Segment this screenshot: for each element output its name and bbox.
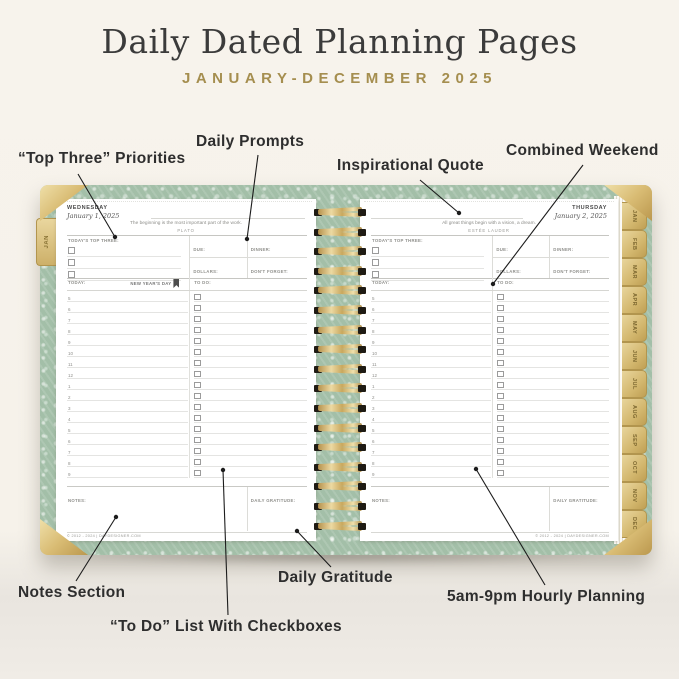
dont-forget-label: DON'T FORGET: xyxy=(553,269,590,274)
priority-checkbox xyxy=(372,259,379,266)
annotation-daily-gratitude: Daily Gratitude xyxy=(278,569,393,587)
todo-label: TO DO: xyxy=(194,280,211,285)
quote-author: PLATO xyxy=(108,228,264,233)
annotation-top-three-priorities: “Top Three” Priorities xyxy=(18,150,185,168)
annotation-combined-weekend: Combined Weekend xyxy=(506,142,659,160)
hour-row: 3 xyxy=(67,401,307,412)
hour-row: 11 xyxy=(371,357,609,368)
hour-row: 4 xyxy=(371,412,609,423)
priorities-and-prompts-band: TODAY'S TOP THREE: DUE: DOLLARS: DINNER:… xyxy=(371,235,609,279)
today-label: TODAY: xyxy=(68,280,85,285)
todo-checkbox xyxy=(194,448,201,455)
todo-checkbox xyxy=(497,415,504,422)
gratitude-section: DAILY GRATITUDE: xyxy=(247,487,307,531)
hour-row: 3 xyxy=(371,401,609,412)
top-three-rows xyxy=(371,245,492,281)
hour-row: 9 xyxy=(371,467,609,478)
notes-label: NOTES: xyxy=(372,498,390,503)
due-label: DUE: xyxy=(193,247,205,252)
month-tab-feb: FEB xyxy=(622,230,647,258)
hour-row: 7 xyxy=(67,445,307,456)
dinner-dontforget-column: DINNER: DON'T FORGET: xyxy=(549,236,609,278)
due-dollars-column: DUE: DOLLARS: xyxy=(189,236,246,278)
today-todo-header: TODAY: TO DO: xyxy=(371,277,609,291)
hour-row: 7 xyxy=(67,313,307,324)
todo-checkbox xyxy=(194,305,201,312)
notes-section: NOTES: xyxy=(371,487,549,531)
hour-row: 9 xyxy=(67,467,307,478)
gratitude-section: DAILY GRATITUDE: xyxy=(549,487,609,531)
hour-row: 5 xyxy=(371,291,609,302)
hour-row: 7 xyxy=(371,445,609,456)
schedule-grid: TODAY: NEW YEAR'S DAY TO DO: 56789101112… xyxy=(67,277,307,478)
bookmark-flag-icon xyxy=(173,279,179,288)
todo-checkbox xyxy=(497,448,504,455)
month-tab-jul: JUL xyxy=(622,370,647,398)
product-infographic: Daily Dated Planning Pages JANUARY-DECEM… xyxy=(0,0,679,679)
hour-row: 4 xyxy=(67,412,307,423)
quote-author: ESTÉE LAUDER xyxy=(412,228,567,233)
dinner-label: DINNER: xyxy=(251,247,271,252)
hour-row: 8 xyxy=(371,456,609,467)
due-label: DUE: xyxy=(496,247,508,252)
hour-row: 6 xyxy=(371,434,609,445)
dinner-dontforget-column: DINNER: DON'T FORGET: xyxy=(247,236,307,278)
todo-checkbox xyxy=(194,360,201,367)
todo-line xyxy=(194,477,307,478)
month-tab-may: MAY xyxy=(622,314,647,342)
todo-checkbox xyxy=(194,371,201,378)
todo-checkbox xyxy=(194,415,201,422)
inspirational-quote: All great things begin with a vision, a … xyxy=(412,221,567,233)
page-subtitle: JANUARY-DECEMBER 2025 xyxy=(0,70,679,87)
hour-row: 1 xyxy=(67,379,307,390)
todo-checkbox xyxy=(497,316,504,323)
todo-checkbox xyxy=(497,338,504,345)
top-three-label: TODAY'S TOP THREE: xyxy=(68,238,189,243)
dollars-label: DOLLARS: xyxy=(496,269,521,274)
todo-checkbox xyxy=(194,294,201,301)
footer-rule xyxy=(371,532,609,533)
gratitude-label: DAILY GRATITUDE: xyxy=(553,498,598,503)
today-label: TODAY: xyxy=(372,280,389,285)
todo-checkbox xyxy=(194,404,201,411)
hour-row: 1 xyxy=(371,379,609,390)
priority-checkbox xyxy=(68,259,75,266)
quote-text: All great things begin with a vision, a … xyxy=(412,221,567,227)
todo-checkbox xyxy=(194,459,201,466)
hour-line xyxy=(371,477,491,478)
notes-gratitude-band: NOTES: DAILY GRATITUDE: xyxy=(67,486,307,531)
todo-checkbox xyxy=(497,470,504,477)
priorities-and-prompts-band: TODAY'S TOP THREE: DUE: DOLLARS: DINNER:… xyxy=(67,235,307,279)
hourly-schedule: 56789101112123456789 xyxy=(371,291,609,478)
hour-row: 8 xyxy=(67,324,307,335)
hour-row: 10 xyxy=(67,346,307,357)
quote-text: The beginning is the most important part… xyxy=(108,221,264,227)
hour-row: 12 xyxy=(371,368,609,379)
month-tab-aug: AUG xyxy=(622,398,647,426)
top-three-rows xyxy=(67,245,189,281)
page-footer: © 2012 - 2024 | DAYDESIGNER.COM xyxy=(67,534,307,538)
footer-rule xyxy=(67,532,307,533)
todo-checkbox xyxy=(497,437,504,444)
todo-checkbox xyxy=(497,404,504,411)
left-month-tab-label: JAN xyxy=(44,235,50,249)
hour-row: 5 xyxy=(67,423,307,434)
todo-checkbox xyxy=(194,393,201,400)
gratitude-label: DAILY GRATITUDE: xyxy=(251,498,296,503)
todo-checkbox xyxy=(194,437,201,444)
month-tab-jun: JUN xyxy=(622,342,647,370)
month-tab-mar: MAR xyxy=(622,258,647,286)
todo-checkbox xyxy=(194,382,201,389)
annotation-daily-prompts: Daily Prompts xyxy=(196,133,304,151)
holiday: NEW YEAR'S DAY xyxy=(130,279,179,288)
dollars-label: DOLLARS: xyxy=(193,269,218,274)
todo-checkbox xyxy=(497,294,504,301)
todo-checkbox xyxy=(497,393,504,400)
todo-label: TO DO: xyxy=(497,280,514,285)
month-tab-sep: SEP xyxy=(622,426,647,454)
hour-row: 8 xyxy=(371,324,609,335)
top-three-section: TODAY'S TOP THREE: xyxy=(67,236,189,278)
planner-left-page: WEDNESDAY January 1, 2025 The beginning … xyxy=(56,199,316,541)
annotation-to-do-list-with-checkboxes: “To Do” List With Checkboxes xyxy=(110,618,342,636)
notes-gratitude-band: NOTES: DAILY GRATITUDE: xyxy=(371,486,609,531)
todo-checkbox xyxy=(194,470,201,477)
notes-label: NOTES: xyxy=(68,498,86,503)
hour-row: 8 xyxy=(67,456,307,467)
top-three-section: TODAY'S TOP THREE: xyxy=(371,236,492,278)
todo-checkbox xyxy=(194,316,201,323)
planner-right-page: THURSDAY January 2, 2025 All great thing… xyxy=(360,199,618,541)
today-todo-header: TODAY: NEW YEAR'S DAY TO DO: xyxy=(67,277,307,291)
inspirational-quote: The beginning is the most important part… xyxy=(108,221,264,233)
hour-row: 6 xyxy=(371,302,609,313)
date-underline xyxy=(151,218,305,219)
hour-row: 2 xyxy=(67,390,307,401)
annotation-inspirational-quote: Inspirational Quote xyxy=(337,157,484,175)
todo-checkbox xyxy=(194,349,201,356)
annotation-5am-9pm-hourly-planning: 5am-9pm Hourly Planning xyxy=(447,588,645,606)
todo-checkbox xyxy=(497,360,504,367)
hour-row: 7 xyxy=(371,313,609,324)
page-footer: © 2012 - 2024 | DAYDESIGNER.COM xyxy=(371,534,609,538)
priority-checkbox xyxy=(372,247,379,254)
hour-row: 6 xyxy=(67,434,307,445)
month-tab-apr: APR xyxy=(622,286,647,314)
hour-row: 10 xyxy=(371,346,609,357)
todo-checkbox xyxy=(497,305,504,312)
hour-row: 9 xyxy=(371,335,609,346)
priority-row xyxy=(371,245,484,257)
day-name: THURSDAY xyxy=(371,205,607,211)
dinner-label: DINNER: xyxy=(553,247,573,252)
holiday-label: NEW YEAR'S DAY xyxy=(130,281,171,286)
hour-row: 5 xyxy=(371,423,609,434)
hour-row: 6 xyxy=(67,302,307,313)
priority-row xyxy=(67,245,181,257)
todo-checkbox xyxy=(497,426,504,433)
todo-checkbox xyxy=(194,338,201,345)
month-tab-nov: NOV xyxy=(622,482,647,510)
hour-line xyxy=(67,477,188,478)
hour-row: 2 xyxy=(371,390,609,401)
month-tab-oct: OCT xyxy=(622,454,647,482)
due-dollars-column: DUE: DOLLARS: xyxy=(492,236,549,278)
todo-checkbox xyxy=(497,327,504,334)
day-name: WEDNESDAY xyxy=(67,205,305,211)
hour-row: 12 xyxy=(67,368,307,379)
hour-row: 9 xyxy=(67,335,307,346)
dont-forget-label: DON'T FORGET: xyxy=(251,269,288,274)
schedule-grid: TODAY: TO DO: 56789101112123456789 xyxy=(371,277,609,478)
hour-row: 11 xyxy=(67,357,307,368)
todo-checkbox xyxy=(194,327,201,334)
hourly-schedule: 56789101112123456789 xyxy=(67,291,307,478)
todo-checkbox xyxy=(497,349,504,356)
priority-row xyxy=(371,257,484,269)
todo-line xyxy=(497,477,609,478)
todo-checkbox xyxy=(194,426,201,433)
todo-checkbox xyxy=(497,371,504,378)
priority-checkbox xyxy=(68,247,75,254)
page-title: Daily Dated Planning Pages xyxy=(0,22,679,61)
priority-row xyxy=(67,257,181,269)
hour-row: 5 xyxy=(67,291,307,302)
annotation-notes-section: Notes Section xyxy=(18,584,125,602)
date-underline xyxy=(371,218,523,219)
todo-checkbox xyxy=(497,459,504,466)
todo-checkbox xyxy=(497,382,504,389)
left-month-tab: JAN xyxy=(36,218,57,266)
top-three-label: TODAY'S TOP THREE: xyxy=(372,238,492,243)
notes-section: NOTES: xyxy=(67,487,247,531)
